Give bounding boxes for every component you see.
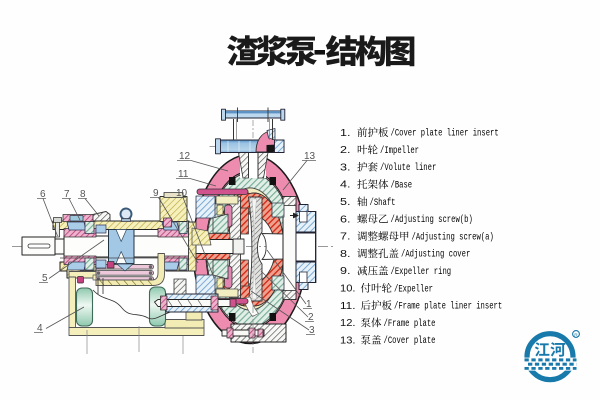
svg-text:/Volute liner: /Volute liner bbox=[380, 162, 436, 174]
svg-text:/Cover plate liner insert: /Cover plate liner insert bbox=[391, 128, 499, 140]
svg-text:13.: 13. bbox=[340, 335, 356, 346]
svg-text:/Frame plate liner insert: /Frame plate liner insert bbox=[394, 301, 502, 313]
svg-text:5.: 5. bbox=[340, 197, 351, 208]
svg-text:3.: 3. bbox=[340, 162, 351, 173]
svg-text:6.: 6. bbox=[340, 214, 351, 225]
svg-text:1.: 1. bbox=[340, 128, 351, 139]
svg-text:/Expeller ring: /Expeller ring bbox=[391, 266, 452, 278]
svg-text:2.: 2. bbox=[340, 145, 351, 156]
svg-text:11.: 11. bbox=[340, 301, 356, 312]
svg-text:/Adjusting screw(b): /Adjusting screw(b) bbox=[391, 214, 473, 226]
svg-text:7.: 7. bbox=[340, 232, 351, 243]
svg-text:/Frame plate: /Frame plate bbox=[384, 318, 436, 330]
svg-text:10.: 10. bbox=[340, 284, 356, 295]
svg-text:/Cover plate: /Cover plate bbox=[384, 335, 436, 347]
svg-text:/Impeller: /Impeller bbox=[380, 145, 419, 157]
svg-text:12.: 12. bbox=[340, 318, 356, 329]
svg-text:/Adjusting cover: /Adjusting cover bbox=[401, 249, 470, 261]
svg-text:R: R bbox=[574, 332, 578, 338]
svg-text:/Base: /Base bbox=[391, 180, 413, 192]
svg-text:4.: 4. bbox=[340, 180, 351, 191]
svg-text:/Expeller: /Expeller bbox=[394, 283, 433, 295]
svg-text:8.: 8. bbox=[340, 249, 351, 260]
svg-text:/Adjusting screw(a): /Adjusting screw(a) bbox=[412, 231, 494, 243]
svg-text:9.: 9. bbox=[340, 266, 351, 277]
svg-text:/Shaft: /Shaft bbox=[370, 197, 396, 209]
